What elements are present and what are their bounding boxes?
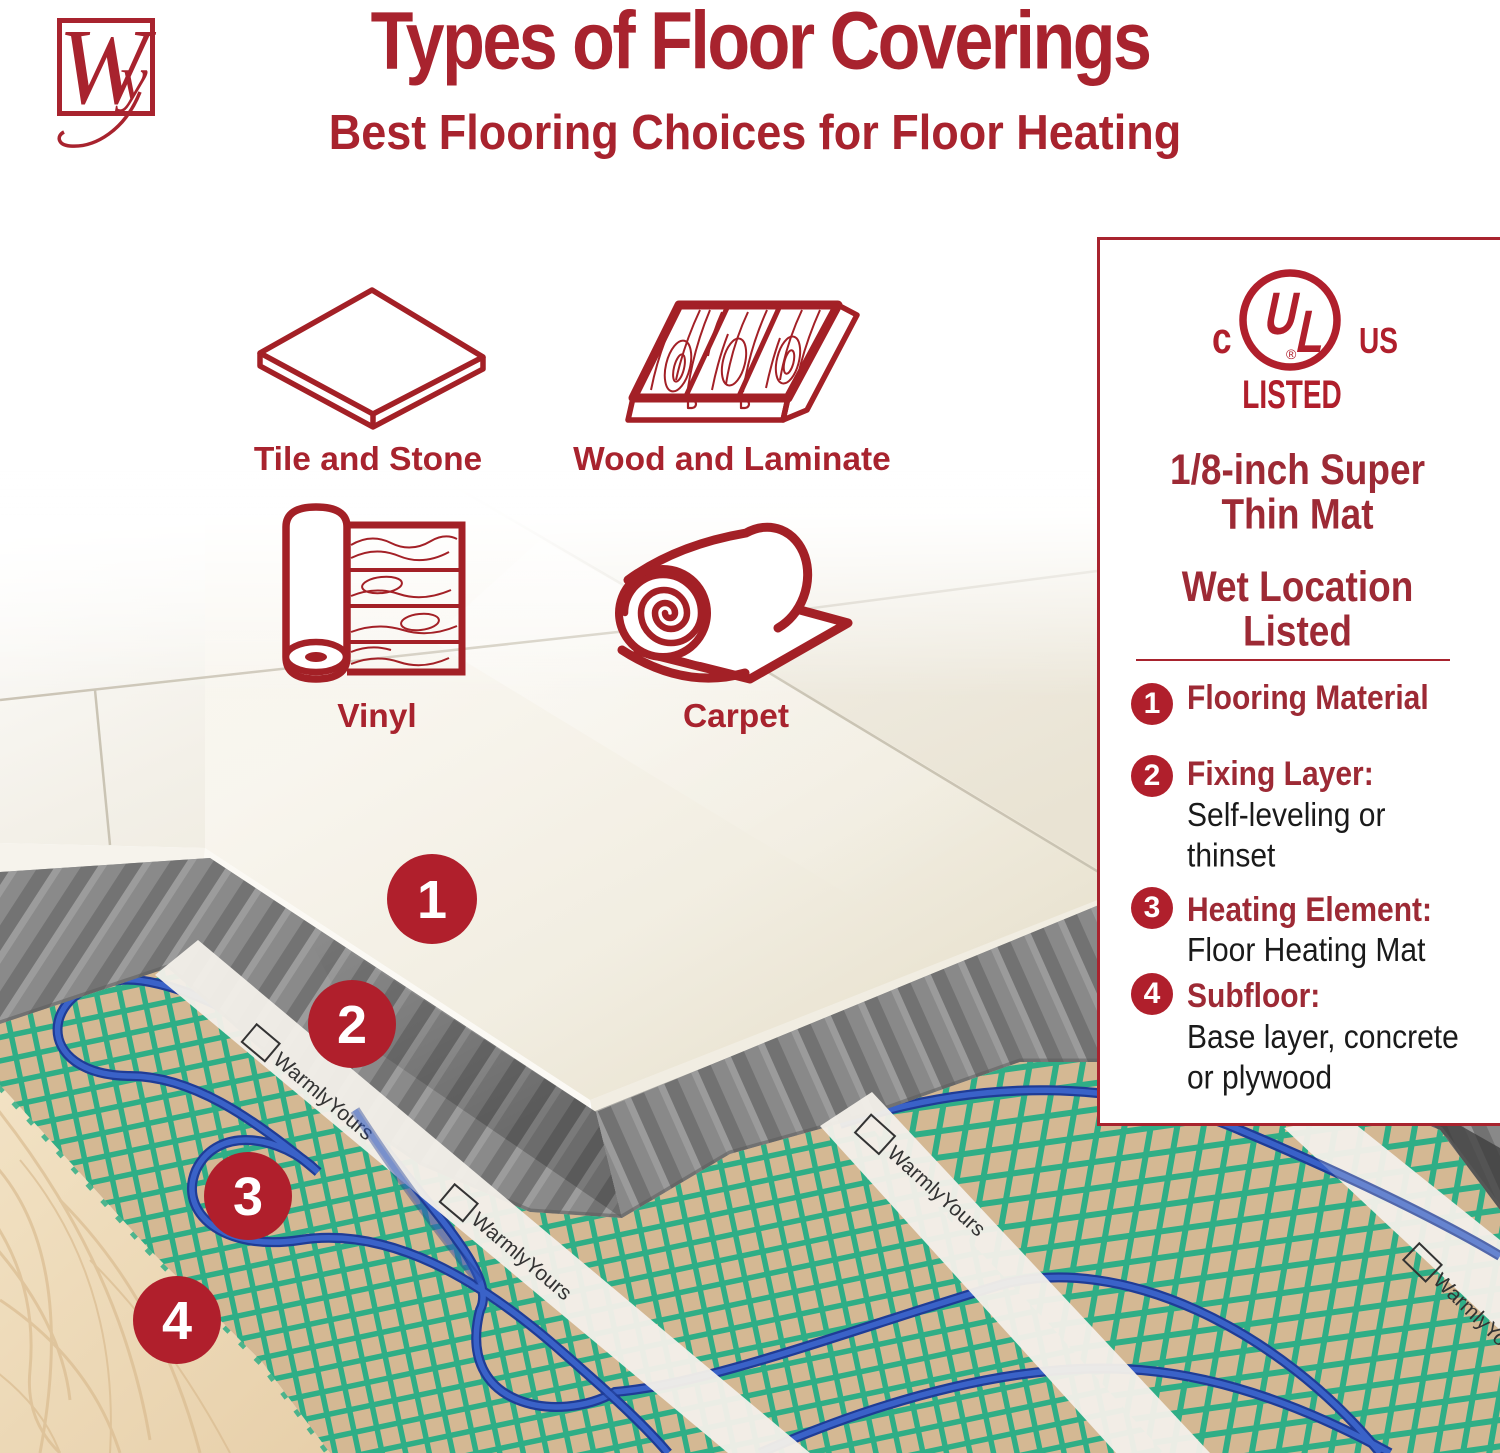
svg-text:3: 3 — [233, 1167, 263, 1227]
svg-text:®: ® — [1286, 346, 1297, 362]
svg-text:1: 1 — [417, 870, 447, 930]
svg-text:LISTED: LISTED — [1242, 373, 1342, 417]
svg-text:2: 2 — [337, 995, 367, 1055]
svg-text:US: US — [1359, 321, 1398, 361]
svg-text:4: 4 — [162, 1291, 192, 1351]
svg-text:c: c — [1212, 314, 1232, 363]
